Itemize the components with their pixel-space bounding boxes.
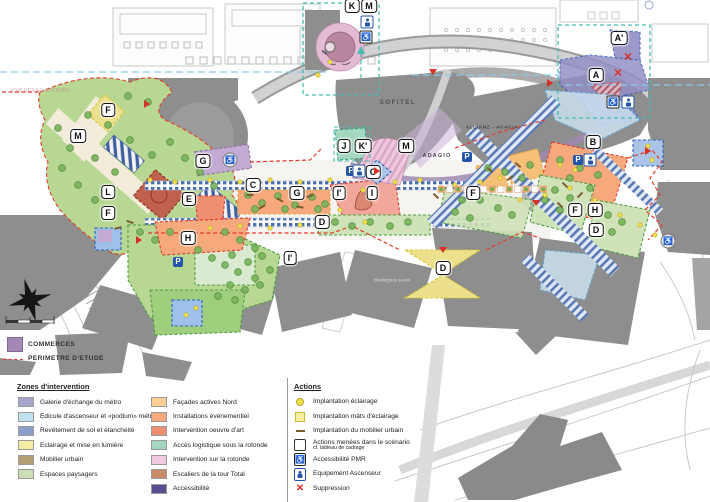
zone-swatch [151, 426, 167, 436]
suppression-x-icon: ✕ [613, 69, 622, 80]
zone-label-badge-f: F [466, 186, 480, 200]
zones-legend-row: Mobilier urbain [18, 453, 156, 467]
elevator-icon [622, 96, 635, 109]
actions-legend-title: Actions [294, 382, 321, 391]
direction-triangle-icon [136, 236, 142, 244]
direction-triangle-icon [532, 200, 540, 206]
action-label: Equipement Ascenseur [313, 470, 381, 478]
zones-legend-row: Intervention sur la rotonde [151, 453, 268, 467]
direction-triangle-icon [374, 167, 380, 175]
zone-label: Eclairage et mise en lumière [40, 442, 123, 449]
actions-legend-row: ✕Suppression [294, 481, 410, 495]
zone-label: Escaliers de la tour Total [173, 471, 245, 478]
accessibility-pmr-icon: ♿ [360, 31, 373, 44]
zone-label: Installations événementiel [173, 413, 249, 420]
zone-swatch [18, 455, 34, 465]
zone-label: Intervention oeuvre d'art [173, 427, 244, 434]
zone-label-badge-a: A [589, 68, 604, 82]
zone-label-badge-d: D [315, 215, 330, 229]
zones-legend-row: Intervention oeuvre d'art [151, 424, 268, 438]
zones-legend-row: Revêtement de sol et étanchéité [18, 424, 156, 438]
action-label: Implantation du mobilier urbain [313, 427, 403, 435]
direction-triangle-icon [439, 247, 447, 253]
zone-label-badge-ip: I' [284, 251, 297, 265]
zone-label: Mobilier urbain [40, 456, 83, 463]
zones-legend-row: Galerie d'échange du métro [18, 395, 156, 409]
site-plan-stage: KMA'ABFMGLEFHCCGI'IDI'JK'MFFHDDSOFITELAL… [0, 0, 710, 502]
action-label: Implantation mâts d'éclairage [313, 413, 399, 421]
zone-label-badge-h: H [588, 203, 603, 217]
zone-swatch [18, 426, 34, 436]
square-legend-icon [294, 412, 306, 422]
zone-label-badge-kp: K' [355, 139, 372, 153]
parking-icon: P [573, 155, 583, 165]
commerces-swatch [7, 337, 23, 352]
zone-swatch [151, 397, 167, 407]
perimeter-label: PERIMETRE D'ETUDE [28, 355, 104, 362]
zone-swatch [151, 412, 167, 422]
zone-swatch [151, 484, 167, 494]
zones-legend-row: Espaces paysagers [18, 467, 156, 481]
parking-icon: P [173, 257, 183, 267]
pmr-legend-icon: ♿ [294, 453, 306, 466]
actions-legend-items: Implantation éclairageImplantation mâts … [294, 395, 410, 496]
zone-label-badge-f: F [568, 203, 582, 217]
zone-label-badge-b: B [586, 135, 601, 149]
actions-legend-row: Equipement Ascenseur [294, 467, 410, 481]
zone-label-badge-m: M [398, 139, 414, 153]
action-label: Implantation éclairage [313, 398, 378, 406]
zones-legend-row: Accès logistique sous la rotonde [151, 438, 268, 452]
zone-label: Galerie d'échange du métro [40, 399, 121, 406]
zone-label: Accessibilité [173, 485, 209, 492]
zone-swatch [18, 397, 34, 407]
zone-label: Revêtement de sol et étanchéité [40, 427, 135, 434]
zones-legend-col1: Galerie d'échange du métroEdicule d'asce… [18, 395, 156, 481]
zone-label-badge-i: I [367, 186, 378, 200]
zones-legend-row: Eclairage et mise en lumière [18, 438, 156, 452]
zone-label: Edicule d'ascenseur et «podium» métro [40, 413, 156, 420]
scenario-legend-icon [294, 439, 306, 451]
action-label: Suppression [313, 485, 350, 493]
parking-icon: P [462, 152, 472, 162]
zone-label-badge-d: D [589, 223, 604, 237]
zone-label-badge-c: C [246, 178, 261, 192]
zone-swatch [151, 469, 167, 479]
elevator-icon [361, 16, 374, 29]
direction-triangle-icon [645, 147, 651, 155]
suppression-x-icon: ✕ [623, 53, 632, 64]
zone-label-badge-f: F [101, 206, 115, 220]
zones-legend-row: Accessibilité [151, 481, 268, 495]
zone-label-badge-l: L [101, 185, 115, 199]
elevator-icon [353, 165, 366, 178]
zone-label-badge-f: F [101, 103, 115, 117]
zones-legend-row: Escaliers de la tour Total [151, 467, 268, 481]
map-text-sofitel: SOFITEL [380, 100, 417, 106]
direction-triangle-icon [429, 69, 437, 75]
dot-legend-icon [294, 398, 306, 406]
actions-legend-row: ♿Accessibilité PMR [294, 453, 410, 467]
legend-divider [287, 378, 288, 502]
zone-label-badge-d: D [436, 261, 451, 275]
zone-swatch [151, 440, 167, 450]
zone-label-badge-g: G [195, 154, 210, 168]
direction-triangle-icon [144, 100, 150, 108]
action-label: Actions menées dans le scénariocf. table… [313, 439, 410, 453]
zone-label-badge-m: M [361, 0, 377, 13]
actions-legend-row: Actions menées dans le scénariocf. table… [294, 438, 410, 452]
magnifier-icon [325, 42, 336, 53]
zone-label-badge-k: K [345, 0, 360, 13]
zone-label: Espaces paysagers [40, 471, 98, 478]
commerces-label: COMMERCES [28, 341, 75, 348]
zones-legend-col2: Façades actives NordInstallations événem… [151, 395, 268, 496]
action-label: Accessibilité PMR [313, 456, 366, 464]
accessibility-pmr-icon: ♿ [607, 96, 620, 109]
perimeter-dash-sample [3, 359, 23, 360]
elevator-legend-icon [294, 468, 306, 481]
zones-legend-title: Zones d'intervention [17, 382, 89, 391]
map-text-boulangerie: Boulangerie à vent [374, 278, 411, 283]
map-text-voie: VOIE DES SCULPTEURS [10, 88, 69, 93]
x-legend-icon: ✕ [294, 484, 306, 494]
zones-legend-row: Edicule d'ascenseur et «podium» métro [18, 409, 156, 423]
actions-legend-row: Implantation du mobilier urbain [294, 424, 410, 438]
zone-label-badge-ip: I' [333, 186, 346, 200]
zone-label-badge-e: E [182, 192, 196, 206]
zone-label-badge-g: G [289, 186, 304, 200]
zone-label-badge-j: J [337, 139, 350, 153]
actions-legend-row: Implantation mâts d'éclairage [294, 409, 410, 423]
map-text-allianz: ALLIANZ - ACACIA [466, 125, 519, 130]
direction-triangle-icon [547, 79, 553, 87]
map-text-adagio: ADAGIO [423, 153, 452, 159]
zone-swatch [18, 469, 34, 479]
zones-legend-row: Installations événementiel [151, 409, 268, 423]
zone-swatch [18, 440, 34, 450]
zone-label-badge-h: H [181, 231, 196, 245]
zones-legend-row: Façades actives Nord [151, 395, 268, 409]
zone-label-badge-m: M [70, 129, 86, 143]
actions-legend-row: Implantation éclairage [294, 395, 410, 409]
zone-swatch [18, 412, 34, 422]
zone-swatch [151, 455, 167, 465]
zone-label: Intervention sur la rotonde [173, 456, 250, 463]
action-sublabel: cf. tableau de cadrage [313, 446, 410, 452]
accessibility-pmr-round-icon: ♿ [661, 234, 676, 249]
elevator-icon [584, 154, 597, 167]
zone-label: Façades actives Nord [173, 399, 237, 406]
accessibility-pmr-round-icon: ♿ [223, 153, 238, 168]
dash-legend-icon [294, 430, 306, 433]
zone-label-badge-ap: A' [611, 31, 628, 45]
zone-label: Accès logistique sous la rotonde [173, 442, 268, 449]
